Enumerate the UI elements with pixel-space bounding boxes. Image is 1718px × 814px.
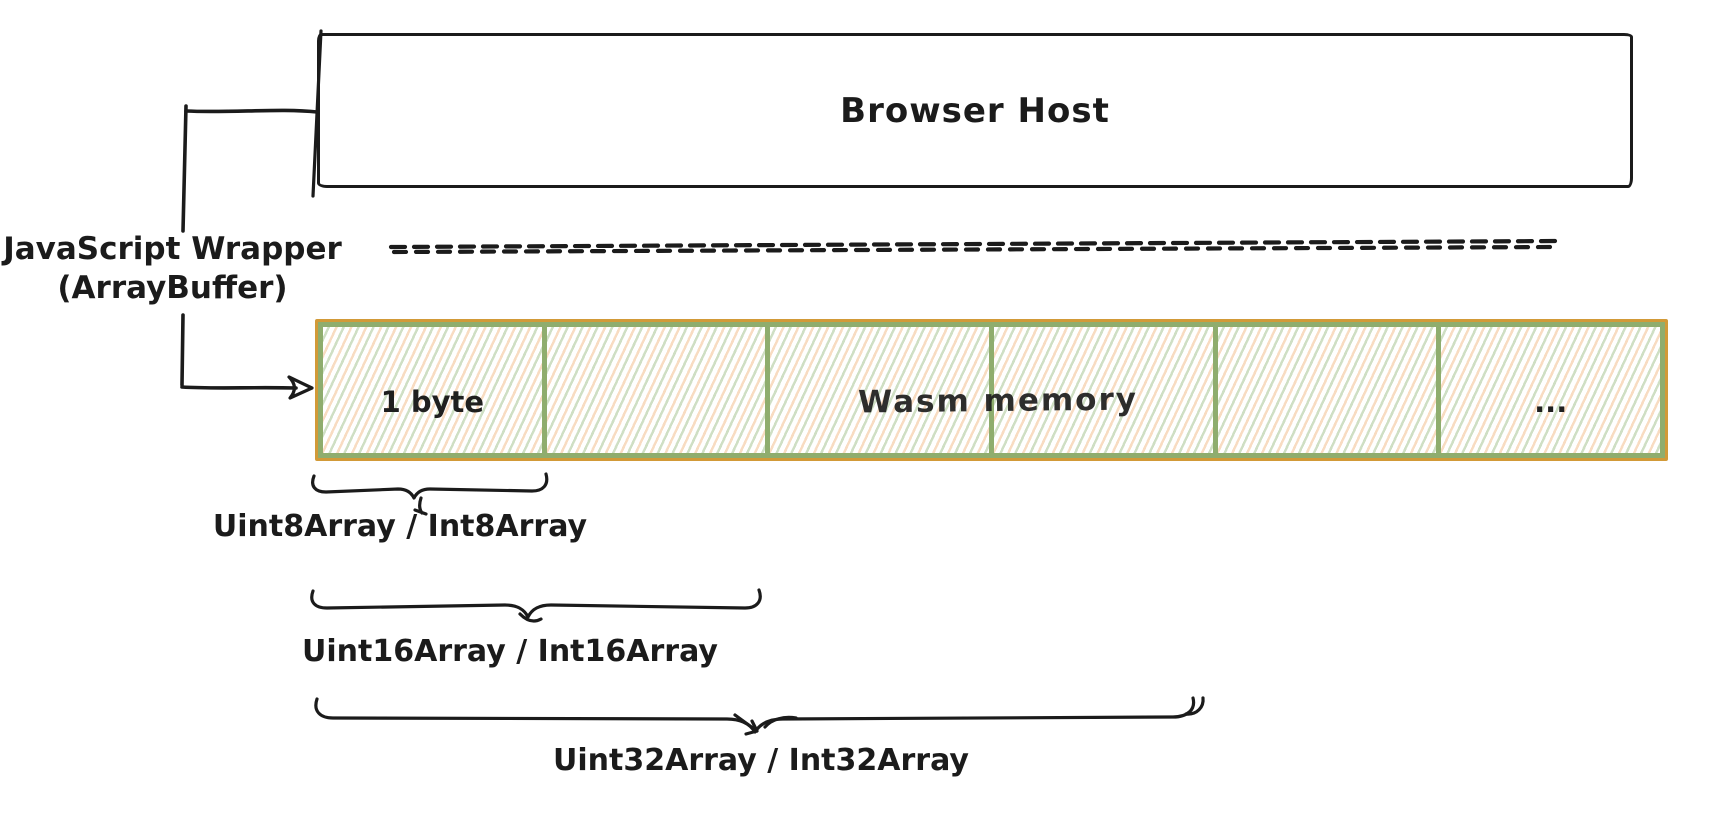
underbrace-uint32-center-curl [765, 717, 796, 727]
byte-cell-label: 1 byte [381, 385, 484, 419]
connector-arrow-shaft [182, 387, 296, 388]
wasm-memory-label: Wasm memory [858, 382, 1138, 421]
ellipsis-label: ... [1534, 385, 1567, 419]
browser-host-box: Browser Host [317, 33, 1633, 188]
uint32array-label: Uint32Array / Int32Array [541, 743, 981, 778]
connector-top-horizontal [186, 110, 317, 112]
uint16array-label: Uint16Array / Int16Array [290, 634, 730, 669]
memory-cell-5 [1218, 322, 1442, 458]
underbrace-uint16-path [312, 590, 760, 617]
wasm-memory-array: 1 byte ... Wasm memory [315, 319, 1668, 461]
js-wrapper-label-line1: JavaScript Wrapper [0, 230, 345, 269]
connector-lower-vertical [182, 315, 183, 385]
underbrace-uint32-end-curl [1186, 698, 1203, 714]
memory-cell-6: ... [1441, 322, 1665, 458]
memory-cell-2 [547, 322, 771, 458]
arrowhead-icon [289, 377, 312, 398]
underbrace-uint8 [313, 474, 547, 514]
underbrace-uint32 [316, 698, 1203, 734]
js-wrapper-label-line2: (ArrayBuffer) [0, 269, 345, 308]
separator-dashed-line-bottom [394, 247, 1558, 252]
underbrace-uint32-path [316, 698, 1194, 732]
uint8array-label: Uint8Array / Int8Array [210, 509, 590, 544]
diagram-canvas: Browser Host JavaScript Wrapper (ArrayBu… [0, 0, 1718, 814]
underbrace-uint16 [312, 590, 760, 621]
memory-cell-1: 1 byte [318, 322, 547, 458]
js-wrapper-label: JavaScript Wrapper (ArrayBuffer) [0, 230, 345, 308]
underbrace-uint8-path [313, 474, 547, 498]
underbrace-uint32-center-arrow [735, 715, 757, 734]
underbrace-uint16-tick [520, 614, 541, 621]
connector-upper-vertical [183, 106, 186, 231]
separator-dashed-line-top [391, 241, 1561, 247]
browser-host-label: Browser Host [840, 91, 1110, 131]
